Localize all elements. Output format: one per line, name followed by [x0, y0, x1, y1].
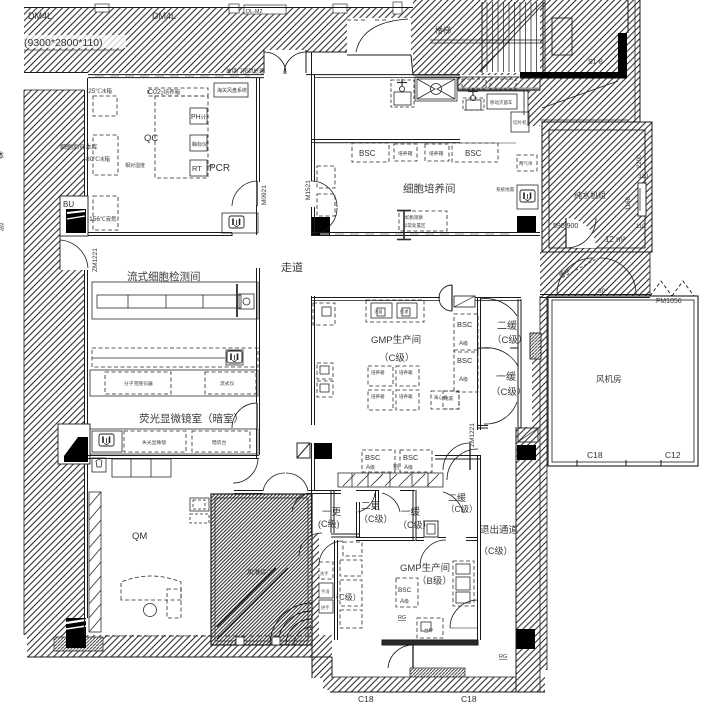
svg-text:110: 110 [636, 224, 646, 230]
svg-text:风淋房②: 风淋房② [247, 567, 274, 576]
svg-text:走道: 走道 [281, 260, 303, 274]
svg-text:二更: 二更 [361, 501, 381, 512]
svg-text:培养箱: 培养箱 [399, 393, 413, 400]
svg-text:GMP生产间: GMP生产间 [400, 562, 450, 574]
svg-text:-25℃冰箱: -25℃冰箱 [86, 87, 112, 95]
svg-text:洗手: 洗手 [320, 570, 328, 577]
svg-text:手消: 手消 [321, 588, 329, 595]
svg-text:QC: QC [144, 133, 158, 144]
svg-text:间: 间 [0, 223, 4, 232]
svg-text:（C级）: （C级） [379, 352, 414, 364]
svg-text:一缓: 一缓 [401, 506, 421, 518]
svg-text:RT: RT [192, 164, 202, 173]
svg-text:灭菌: 灭菌 [374, 308, 382, 315]
svg-text:A级: A级 [404, 464, 413, 471]
svg-text:M1521: M1521 [305, 180, 312, 200]
svg-text:二缓: 二缓 [497, 319, 517, 332]
svg-text:C022培养箱: C022培养箱 [148, 88, 181, 97]
svg-text:A级: A级 [400, 598, 409, 605]
svg-text:玻镁门密封处理: 玻镁门密封处理 [226, 67, 265, 75]
svg-text:S1-8: S1-8 [588, 59, 603, 66]
svg-text:如胞观察: 如胞观察 [405, 214, 423, 221]
svg-text:BSC: BSC [403, 453, 419, 462]
svg-text:地漏: 地漏 [444, 395, 453, 402]
svg-text:C18: C18 [587, 450, 603, 460]
svg-text:相对湿度: 相对湿度 [125, 162, 145, 169]
svg-text:12 m²: 12 m² [605, 235, 626, 244]
svg-text:(C级): (C级) [318, 518, 340, 529]
svg-text:二缓: 二缓 [448, 492, 466, 503]
svg-text:（C级）: （C级） [492, 334, 527, 346]
svg-text:割: 割 [393, 463, 399, 471]
svg-text:退出通道: 退出通道 [480, 524, 519, 536]
svg-text:-156℃液氮: -156℃液氮 [87, 215, 117, 223]
svg-text:纯水机组: 纯水机组 [574, 190, 606, 200]
svg-text:分子克隆仪器: 分子克隆仪器 [124, 380, 153, 387]
svg-text:QM: QM [132, 531, 147, 542]
svg-text:(9300*2800*110): (9300*2800*110) [24, 37, 103, 49]
svg-text:培养箱: 培养箱 [371, 393, 385, 400]
svg-text:-80℃冰箱: -80℃冰箱 [84, 155, 110, 163]
svg-text:BSC: BSC [465, 149, 482, 158]
svg-text:BSC: BSC [457, 320, 473, 329]
svg-text:DM4L: DM4L [152, 11, 176, 21]
svg-text:（C级）: （C级） [331, 592, 361, 602]
svg-text:异常处置区: 异常处置区 [403, 222, 426, 229]
svg-text:风机房: 风机房 [596, 374, 622, 384]
svg-text:暗房台: 暗房台 [212, 439, 227, 446]
svg-text:培养箱: 培养箱 [429, 150, 444, 157]
svg-text:DM4L: DM4L [28, 11, 52, 21]
svg-text:M0921: M0921 [261, 185, 268, 205]
svg-text:失光显微镜: 失光显微镜 [142, 439, 166, 446]
svg-text:（B级）: （B级） [417, 575, 452, 587]
svg-text:PCR: PCR [209, 163, 230, 174]
svg-text:RG: RG [398, 615, 406, 621]
svg-text:楼梯: 楼梯 [435, 25, 451, 35]
svg-text:培养箱: 培养箱 [371, 369, 385, 376]
svg-text:590 900: 590 900 [553, 223, 578, 230]
svg-text:FM1056: FM1056 [656, 298, 682, 305]
svg-text:（C级）: （C级） [398, 519, 432, 530]
svg-text:BSC: BSC [359, 149, 376, 158]
svg-text:C18: C18 [461, 694, 477, 704]
svg-text:移动灭菌车: 移动灭菌车 [490, 99, 513, 106]
svg-text:海关风盘系统: 海关风盘系统 [217, 87, 247, 94]
svg-text:一更: 一更 [322, 507, 342, 518]
svg-text:BSC: BSC [365, 453, 381, 462]
svg-text:体: 体 [0, 150, 4, 160]
svg-text:DL-M2: DL-M2 [246, 9, 263, 15]
svg-text:两气吊: 两气吊 [519, 160, 533, 167]
svg-text:烘手: 烘手 [321, 604, 329, 611]
svg-text:PH计: PH计 [191, 113, 207, 121]
svg-text:ZM1221: ZM1221 [469, 423, 476, 447]
svg-text:GMP生产间: GMP生产间 [371, 334, 421, 346]
svg-text:A级: A级 [459, 376, 468, 383]
svg-text:RG: RG [499, 654, 507, 660]
svg-text:流式细胞检测间: 流式细胞检测间 [127, 270, 201, 283]
svg-text:酶标仪: 酶标仪 [192, 141, 207, 148]
svg-text:培养箱: 培养箱 [399, 369, 413, 376]
svg-text:切片机: 切片机 [513, 119, 527, 126]
svg-text:（C级）: （C级） [491, 386, 526, 398]
svg-text:BU: BU [63, 200, 74, 209]
svg-text:C18: C18 [358, 694, 374, 704]
svg-text:传递: 传递 [400, 308, 409, 315]
svg-text:C12: C12 [665, 450, 681, 460]
svg-text:荧光显微镜室（暗室）: 荧光显微镜室（暗室） [139, 412, 244, 425]
svg-text:1160: 1160 [626, 196, 632, 210]
svg-text:细胞库/样本库: 细胞库/样本库 [60, 143, 98, 151]
svg-text:（C级）: （C级） [359, 513, 393, 524]
svg-text:一缓: 一缓 [496, 370, 516, 383]
svg-text:（C级）: （C级） [446, 504, 478, 514]
svg-text:ZM1221: ZM1221 [92, 248, 99, 272]
svg-text:流式仪: 流式仪 [220, 380, 235, 387]
svg-text:310: 310 [638, 174, 649, 180]
svg-text:2200: 2200 [637, 154, 643, 168]
svg-text:台秤: 台秤 [424, 627, 433, 634]
svg-text:培养箱: 培养箱 [398, 150, 413, 157]
svg-text:A级: A级 [366, 464, 375, 471]
svg-text:A级: A级 [459, 340, 468, 347]
svg-text:系统地漏: 系统地漏 [496, 186, 514, 193]
svg-text:BSC: BSC [398, 587, 412, 594]
svg-text:细胞培养间: 细胞培养间 [403, 182, 456, 195]
svg-text:（C级）: （C级） [479, 545, 513, 556]
svg-text:60°: 60° [598, 287, 608, 295]
svg-text:BSC: BSC [457, 356, 473, 365]
